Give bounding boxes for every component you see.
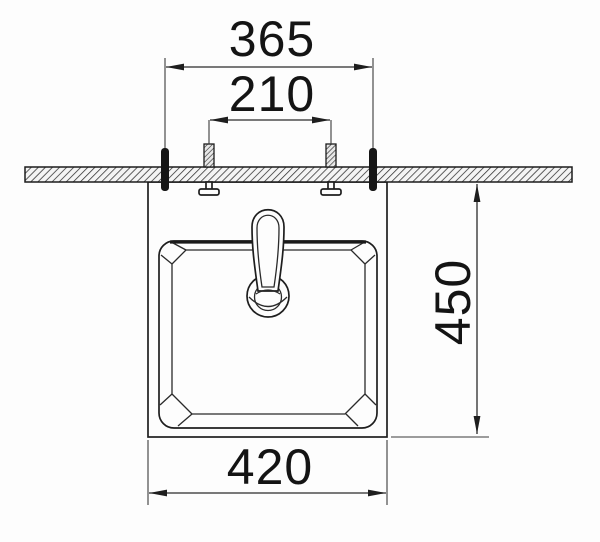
anchor-stud-right bbox=[369, 148, 377, 191]
bolt-flange bbox=[199, 189, 219, 195]
drawing-canvas: 365 210 450 420 bbox=[0, 0, 600, 542]
dim-label-420: 420 bbox=[227, 439, 313, 495]
arrowhead-left bbox=[210, 117, 228, 124]
arrowhead-left bbox=[149, 490, 167, 497]
arrowhead-left bbox=[166, 64, 184, 71]
bolt-flange bbox=[321, 189, 341, 195]
drain-rod-body bbox=[252, 210, 284, 291]
anchor-stud-left bbox=[161, 148, 169, 191]
dimension-450: 450 bbox=[391, 184, 489, 437]
dimension-420: 420 bbox=[148, 439, 387, 505]
bolt-head bbox=[326, 144, 336, 167]
dim-label-210: 210 bbox=[229, 66, 315, 122]
bolt-head bbox=[204, 144, 214, 167]
countertop-section bbox=[25, 167, 572, 182]
dim-label-365: 365 bbox=[229, 11, 315, 67]
basin-body bbox=[148, 182, 387, 437]
dim-label-450: 450 bbox=[425, 259, 481, 345]
arrowhead-right bbox=[368, 490, 386, 497]
dimension-210: 210 bbox=[209, 66, 331, 144]
arrowhead-top bbox=[474, 184, 481, 202]
arrowhead-right bbox=[354, 64, 372, 71]
arrowhead-bottom bbox=[474, 416, 481, 434]
basin-installation-drawing: 365 210 450 420 bbox=[0, 0, 600, 542]
